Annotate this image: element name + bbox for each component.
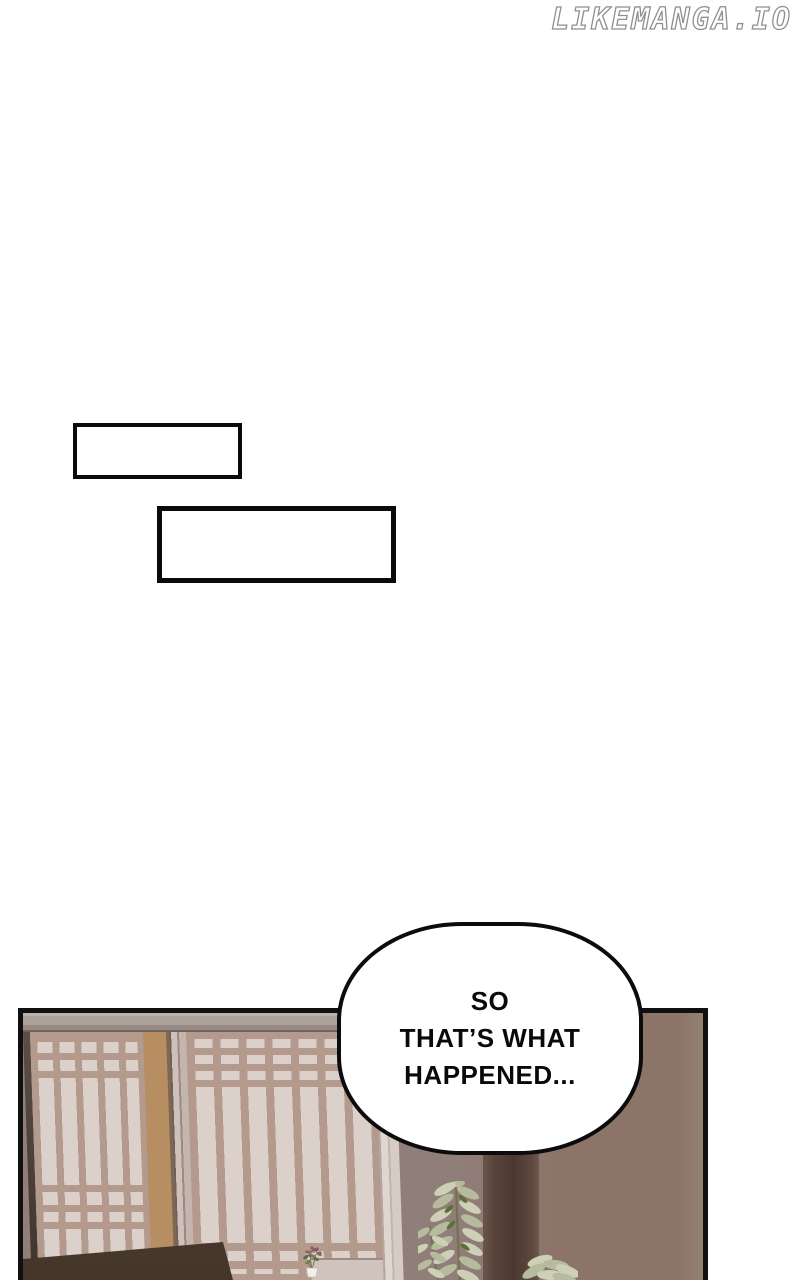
speech-bubble: SO THAT’S WHAT HAPPENED... — [337, 922, 643, 1155]
manga-reader-page: LIKEMANGA.IO — [0, 0, 800, 1280]
speech-bubble-text: SO THAT’S WHAT HAPPENED... — [400, 983, 581, 1094]
empty-speech-box-1 — [73, 423, 242, 479]
speech-line-1: SO — [400, 983, 581, 1020]
speech-line-2: THAT’S WHAT — [400, 1020, 581, 1057]
potted-plant-small — [299, 1244, 325, 1278]
lattice-door-left — [30, 1032, 152, 1280]
potted-plant-large — [418, 1181, 578, 1280]
site-watermark: LIKEMANGA.IO — [551, 2, 792, 37]
empty-speech-box-2 — [157, 506, 396, 583]
speech-line-3: HAPPENED... — [400, 1057, 581, 1094]
